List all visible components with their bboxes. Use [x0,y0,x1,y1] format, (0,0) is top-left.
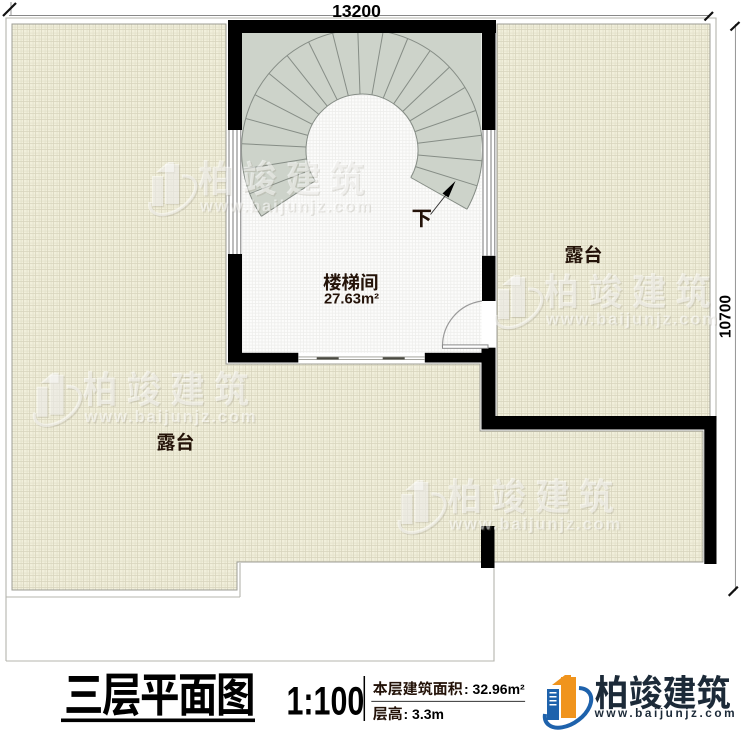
svg-text:www.baijunjz.com: www.baijunjz.com [545,311,719,329]
svg-text:1:100: 1:100 [287,678,365,723]
svg-text:27.63m²: 27.63m² [324,292,379,308]
svg-text:www.baijunjz.com: www.baijunjz.com [448,516,622,534]
svg-text:www.baijunjz.com: www.baijunjz.com [84,408,258,426]
svg-text:www.baijunjz.com: www.baijunjz.com [594,706,738,720]
svg-text:www.baijunjz.com: www.baijunjz.com [199,198,373,216]
svg-text:: 32.96m²: : 32.96m² [464,681,525,697]
svg-text:: 3.3m: : 3.3m [404,706,444,722]
svg-text:10700: 10700 [718,295,735,338]
svg-text:13200: 13200 [332,1,381,21]
